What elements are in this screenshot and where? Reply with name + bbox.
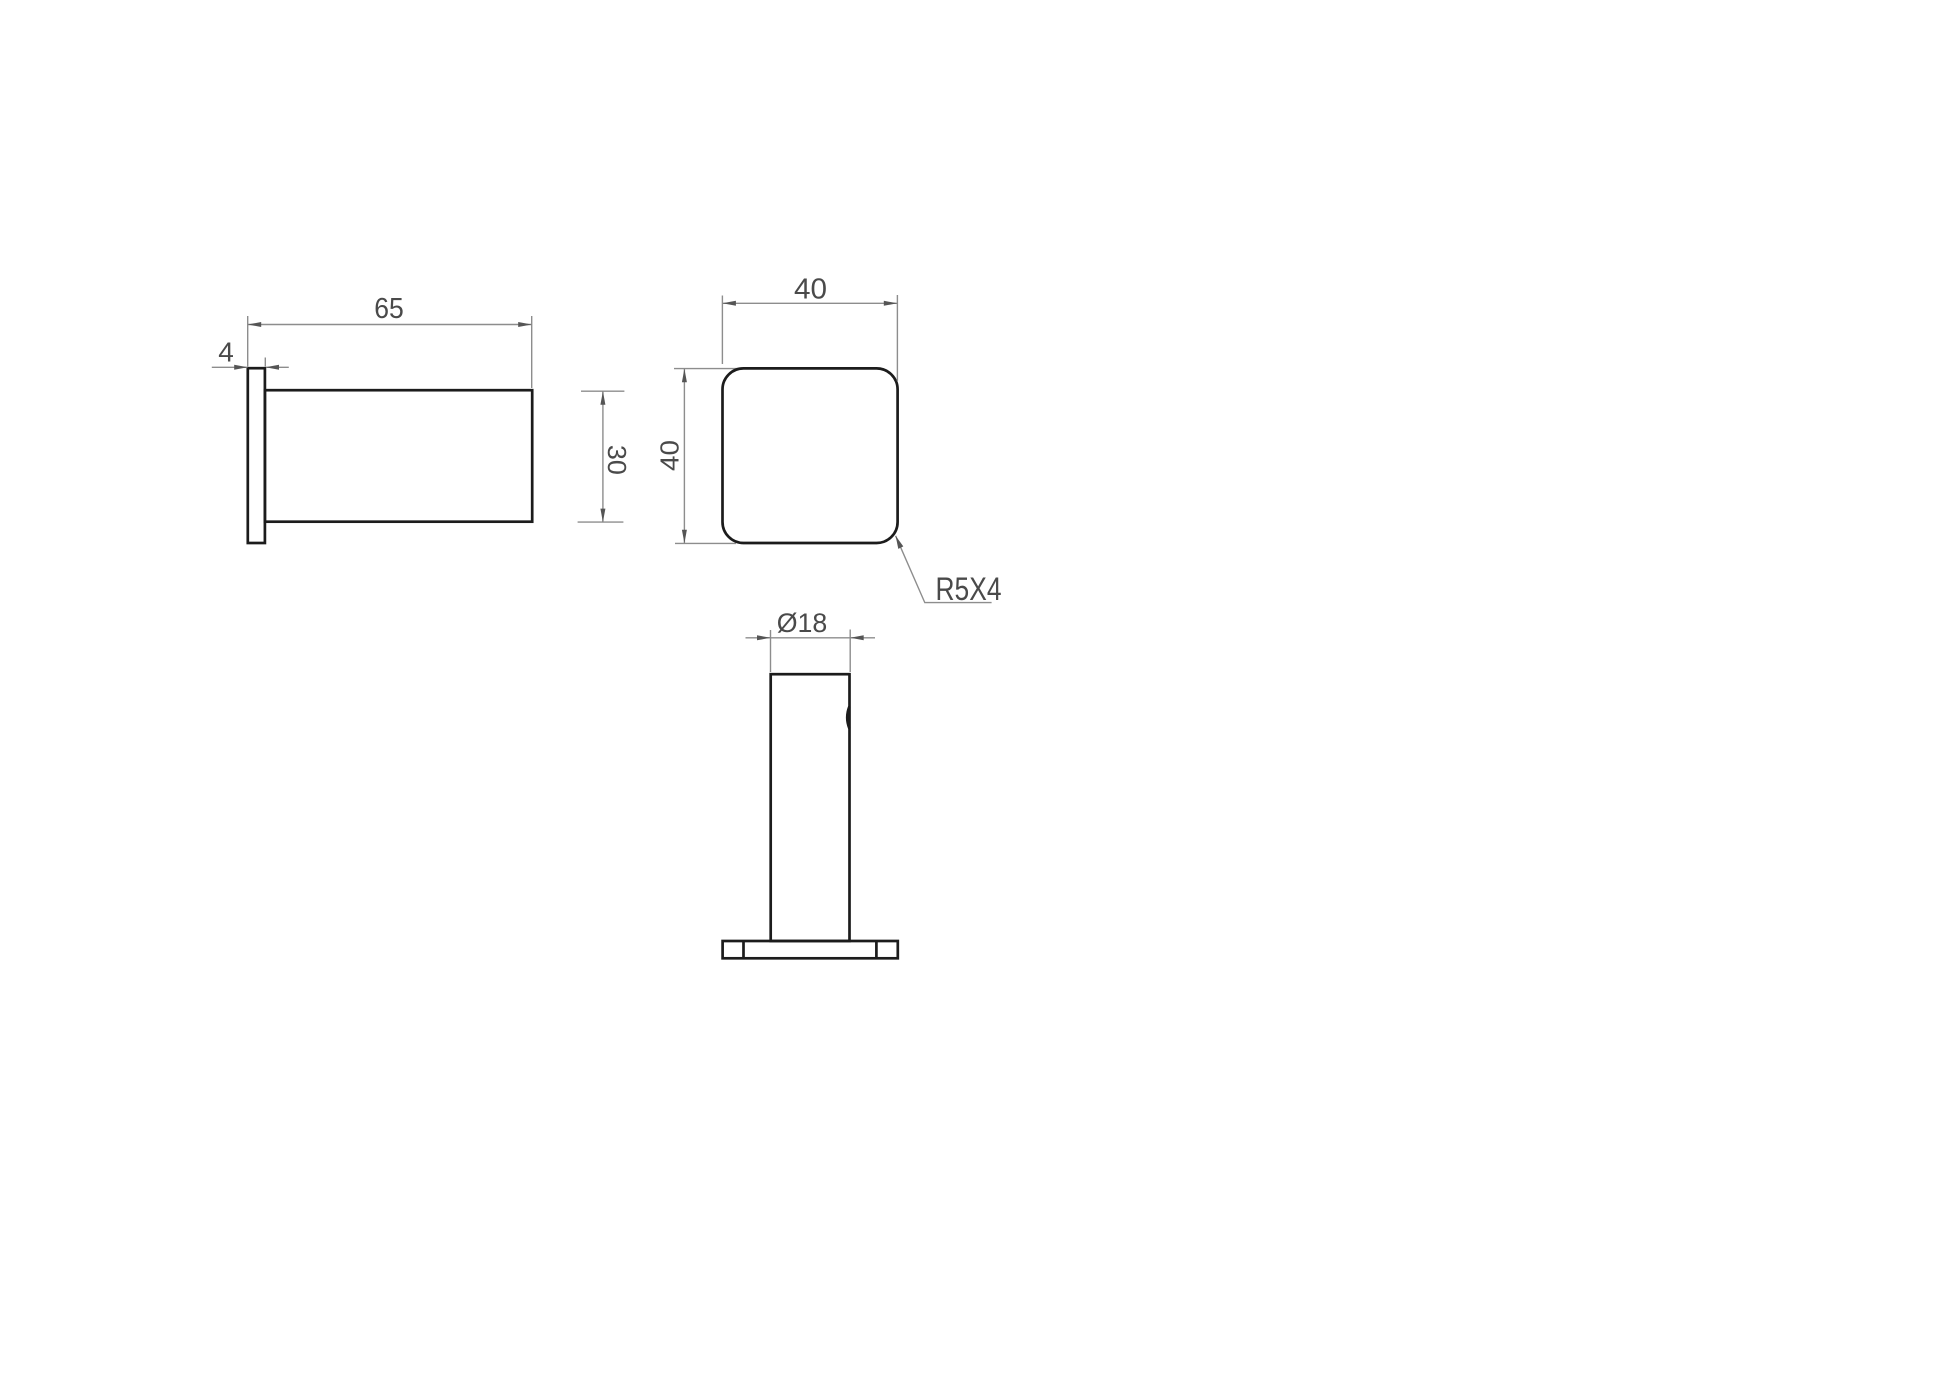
svg-text:4: 4: [218, 337, 234, 368]
svg-text:Ø18: Ø18: [777, 608, 828, 638]
svg-text:40: 40: [794, 274, 827, 306]
svg-text:65: 65: [374, 293, 404, 325]
svg-text:R5X4: R5X4: [936, 571, 1002, 607]
svg-text:30: 30: [602, 445, 632, 475]
svg-text:40: 40: [655, 440, 685, 471]
